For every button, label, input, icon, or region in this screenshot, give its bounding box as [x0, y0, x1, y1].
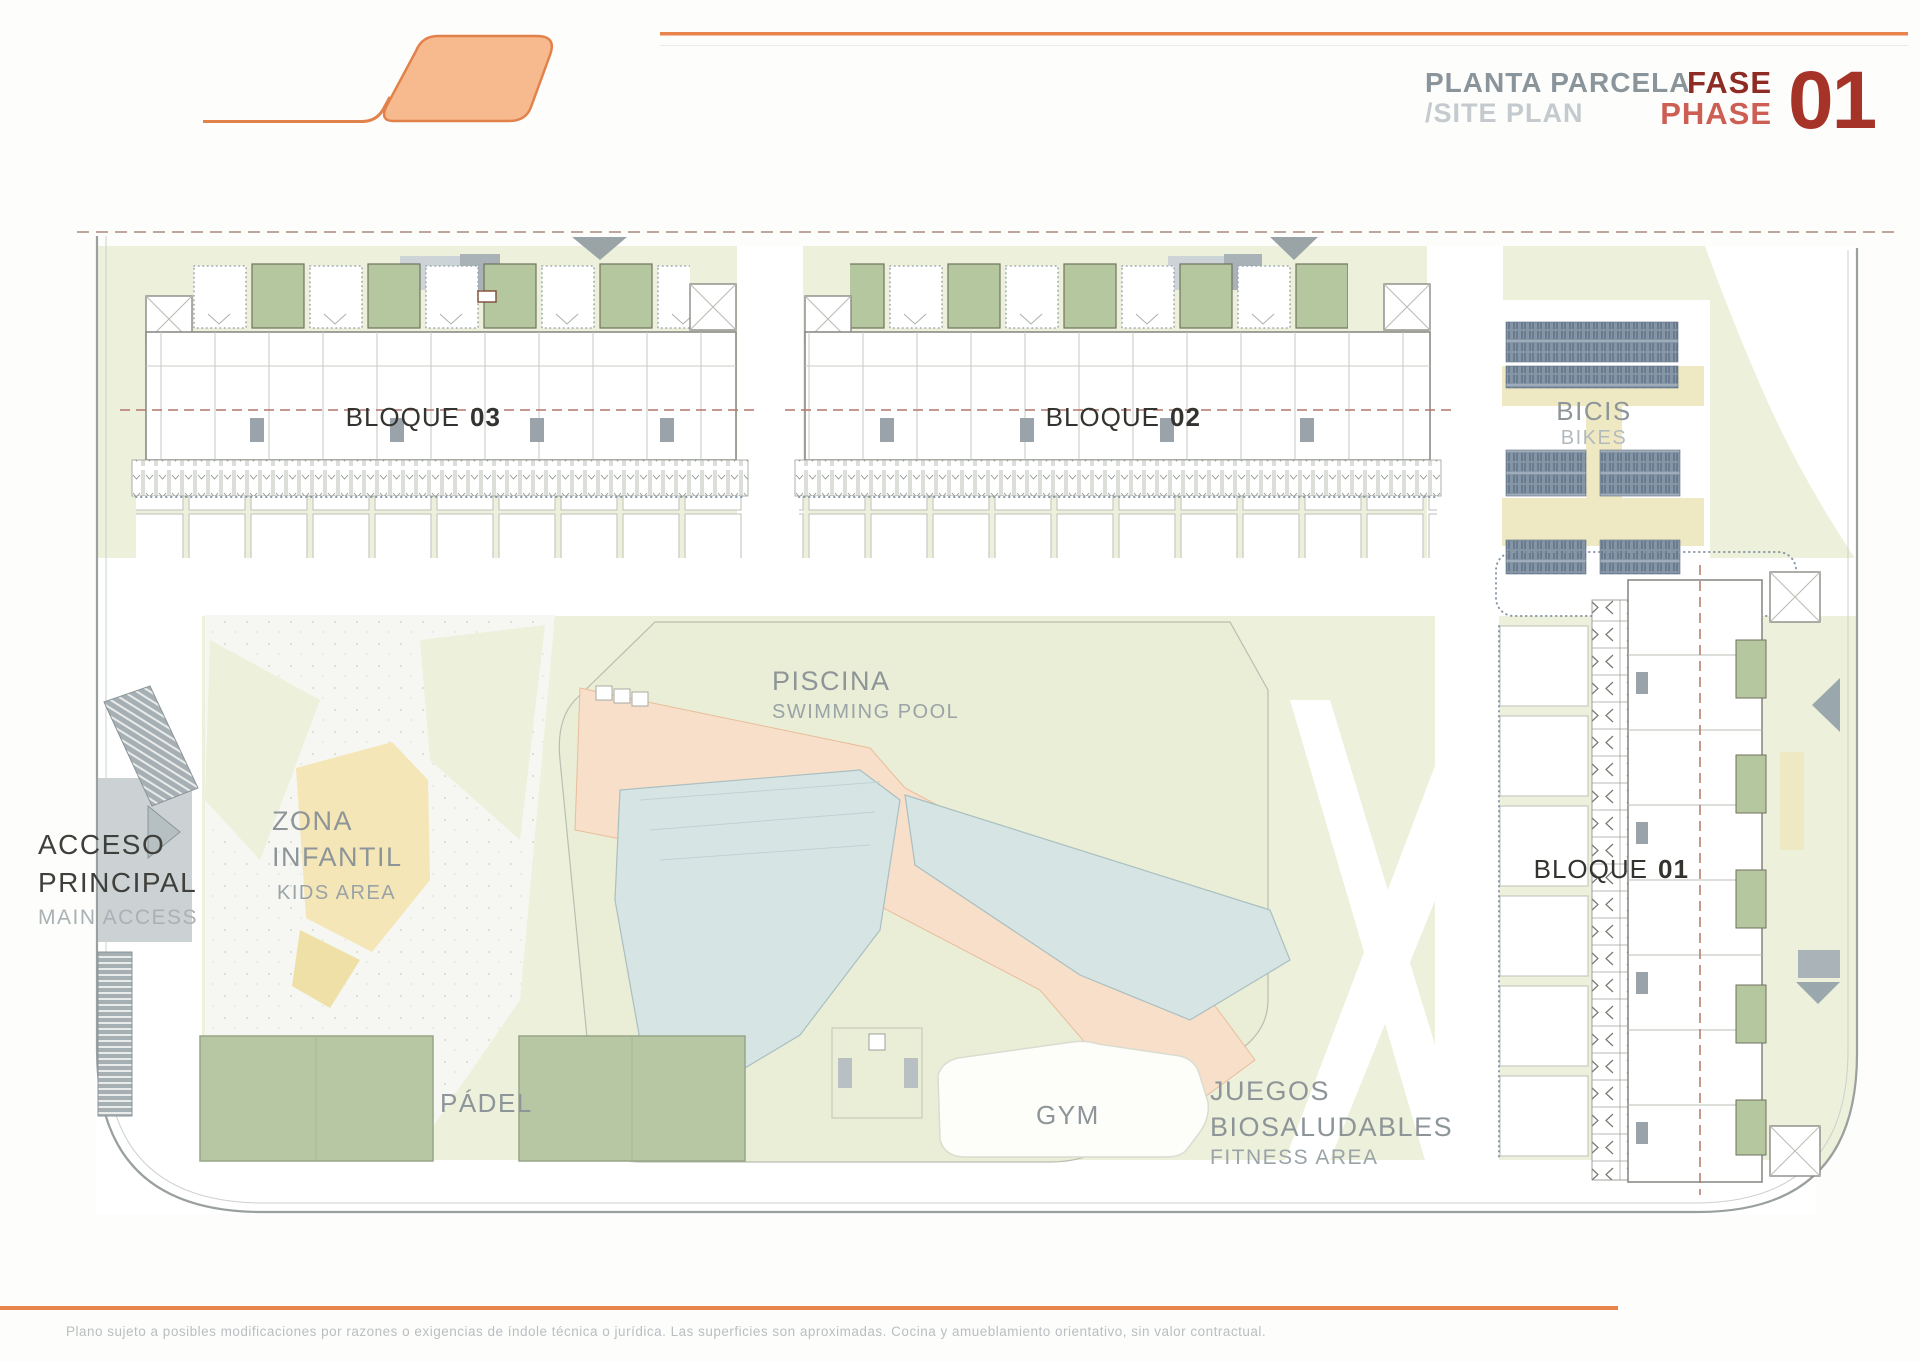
- page-title-en: /SITE PLAN: [1425, 98, 1584, 128]
- logo-mark: [384, 36, 552, 121]
- b03-label-word: BLOQUE: [346, 402, 460, 432]
- footer: Plano sujeto a posibles modificaciones p…: [0, 1306, 1618, 1339]
- bikes-label-en: BIKES: [1561, 427, 1627, 449]
- kids-label-es2: INFANTIL: [272, 842, 403, 872]
- bike-parking-area: BICIS BIKES: [1494, 300, 1710, 590]
- header: PLANTA PARCELA /SITE PLAN FASE PHASE 01: [203, 32, 1908, 146]
- fitness-label-es1: JUEGOS: [1210, 1076, 1330, 1106]
- fitness-label-es2: BIOSALUDABLES: [1210, 1112, 1453, 1142]
- bikes-label-es: BICIS: [1556, 396, 1631, 426]
- footer-disclaimer: Plano sujeto a posibles modificaciones p…: [66, 1324, 1266, 1339]
- site-plan-page: PLANTA PARCELA /SITE PLAN FASE PHASE 01: [0, 0, 1920, 1362]
- header-rule: [660, 32, 1908, 36]
- b02-core-4: [1300, 418, 1314, 442]
- site-plan-drawing: PLANTA PARCELA /SITE PLAN FASE PHASE 01: [0, 0, 1920, 1362]
- pool-label-es: PISCINA: [772, 666, 891, 696]
- footer-rule: [0, 1306, 1618, 1310]
- b03-core-1: [250, 418, 264, 442]
- padel-label: PÁDEL: [440, 1088, 533, 1118]
- b03-balcony-strip: [132, 460, 748, 496]
- b01-stair-column: [1592, 600, 1628, 1180]
- kids-label-es1: ZONA: [272, 806, 353, 836]
- gym-pergola-post-1: [838, 1058, 852, 1088]
- parking-strip-vertical: [98, 952, 132, 1116]
- b01-label-word: BLOQUE: [1534, 854, 1648, 884]
- bike-rack-6: [1600, 540, 1680, 574]
- b02-garden-row: [799, 496, 1437, 558]
- bike-rack-3: [1506, 450, 1586, 496]
- b03-garden-row: [136, 496, 744, 558]
- bloque-03-building: BLOQUE 03: [120, 254, 760, 558]
- b02-label-number: 02: [1170, 402, 1201, 432]
- bike-rack-5: [1506, 540, 1586, 574]
- b03-body-dividers: [146, 332, 736, 460]
- b02-terrace-row: [850, 262, 1348, 332]
- b02-balcony-strip: [795, 460, 1441, 496]
- phase-number: 01: [1788, 55, 1876, 146]
- fase-label: FASE: [1687, 65, 1772, 100]
- b02-label-word: BLOQUE: [1046, 402, 1160, 432]
- b03-terrace-row: [192, 262, 690, 332]
- bike-rack-4: [1600, 450, 1680, 496]
- b01-side-yellow-strip: [1780, 752, 1804, 850]
- b02-body-dividers: [805, 332, 1430, 460]
- phase-label: PHASE: [1660, 96, 1772, 131]
- b03-lift-symbol: [478, 291, 496, 302]
- access-label-es2: PRINCIPAL: [38, 867, 197, 898]
- gym-pergola-hub: [869, 1034, 885, 1050]
- b03-core-4: [660, 418, 674, 442]
- b02-core-2: [1020, 418, 1034, 442]
- access-label-en: MAIN ACCESS: [38, 906, 198, 929]
- access-label-es1: ACCESO: [38, 829, 165, 860]
- b03-core-3: [530, 418, 544, 442]
- fitness-label-en: FITNESS AREA: [1210, 1146, 1379, 1169]
- b02-core-1: [880, 418, 894, 442]
- b01-label-number: 01: [1658, 854, 1689, 884]
- kids-label-en: KIDS AREA: [277, 882, 396, 904]
- gym-pergola-post-2: [904, 1058, 918, 1088]
- bottom-path: [96, 1160, 1816, 1214]
- page-title-es: PLANTA PARCELA: [1425, 67, 1690, 98]
- logo-tail-line: [203, 97, 390, 122]
- bike-yellow-strip-2: [1502, 498, 1704, 546]
- bike-rack-2: [1506, 366, 1678, 388]
- logo: [203, 36, 552, 122]
- bike-rack-1: [1506, 322, 1678, 362]
- gym-label: GYM: [1036, 1100, 1100, 1130]
- header-rule-light: [660, 45, 1908, 46]
- b03-label-number: 03: [470, 402, 501, 432]
- pool-label-en: SWIMMING POOL: [772, 701, 959, 723]
- b01-east-block: [1798, 950, 1840, 978]
